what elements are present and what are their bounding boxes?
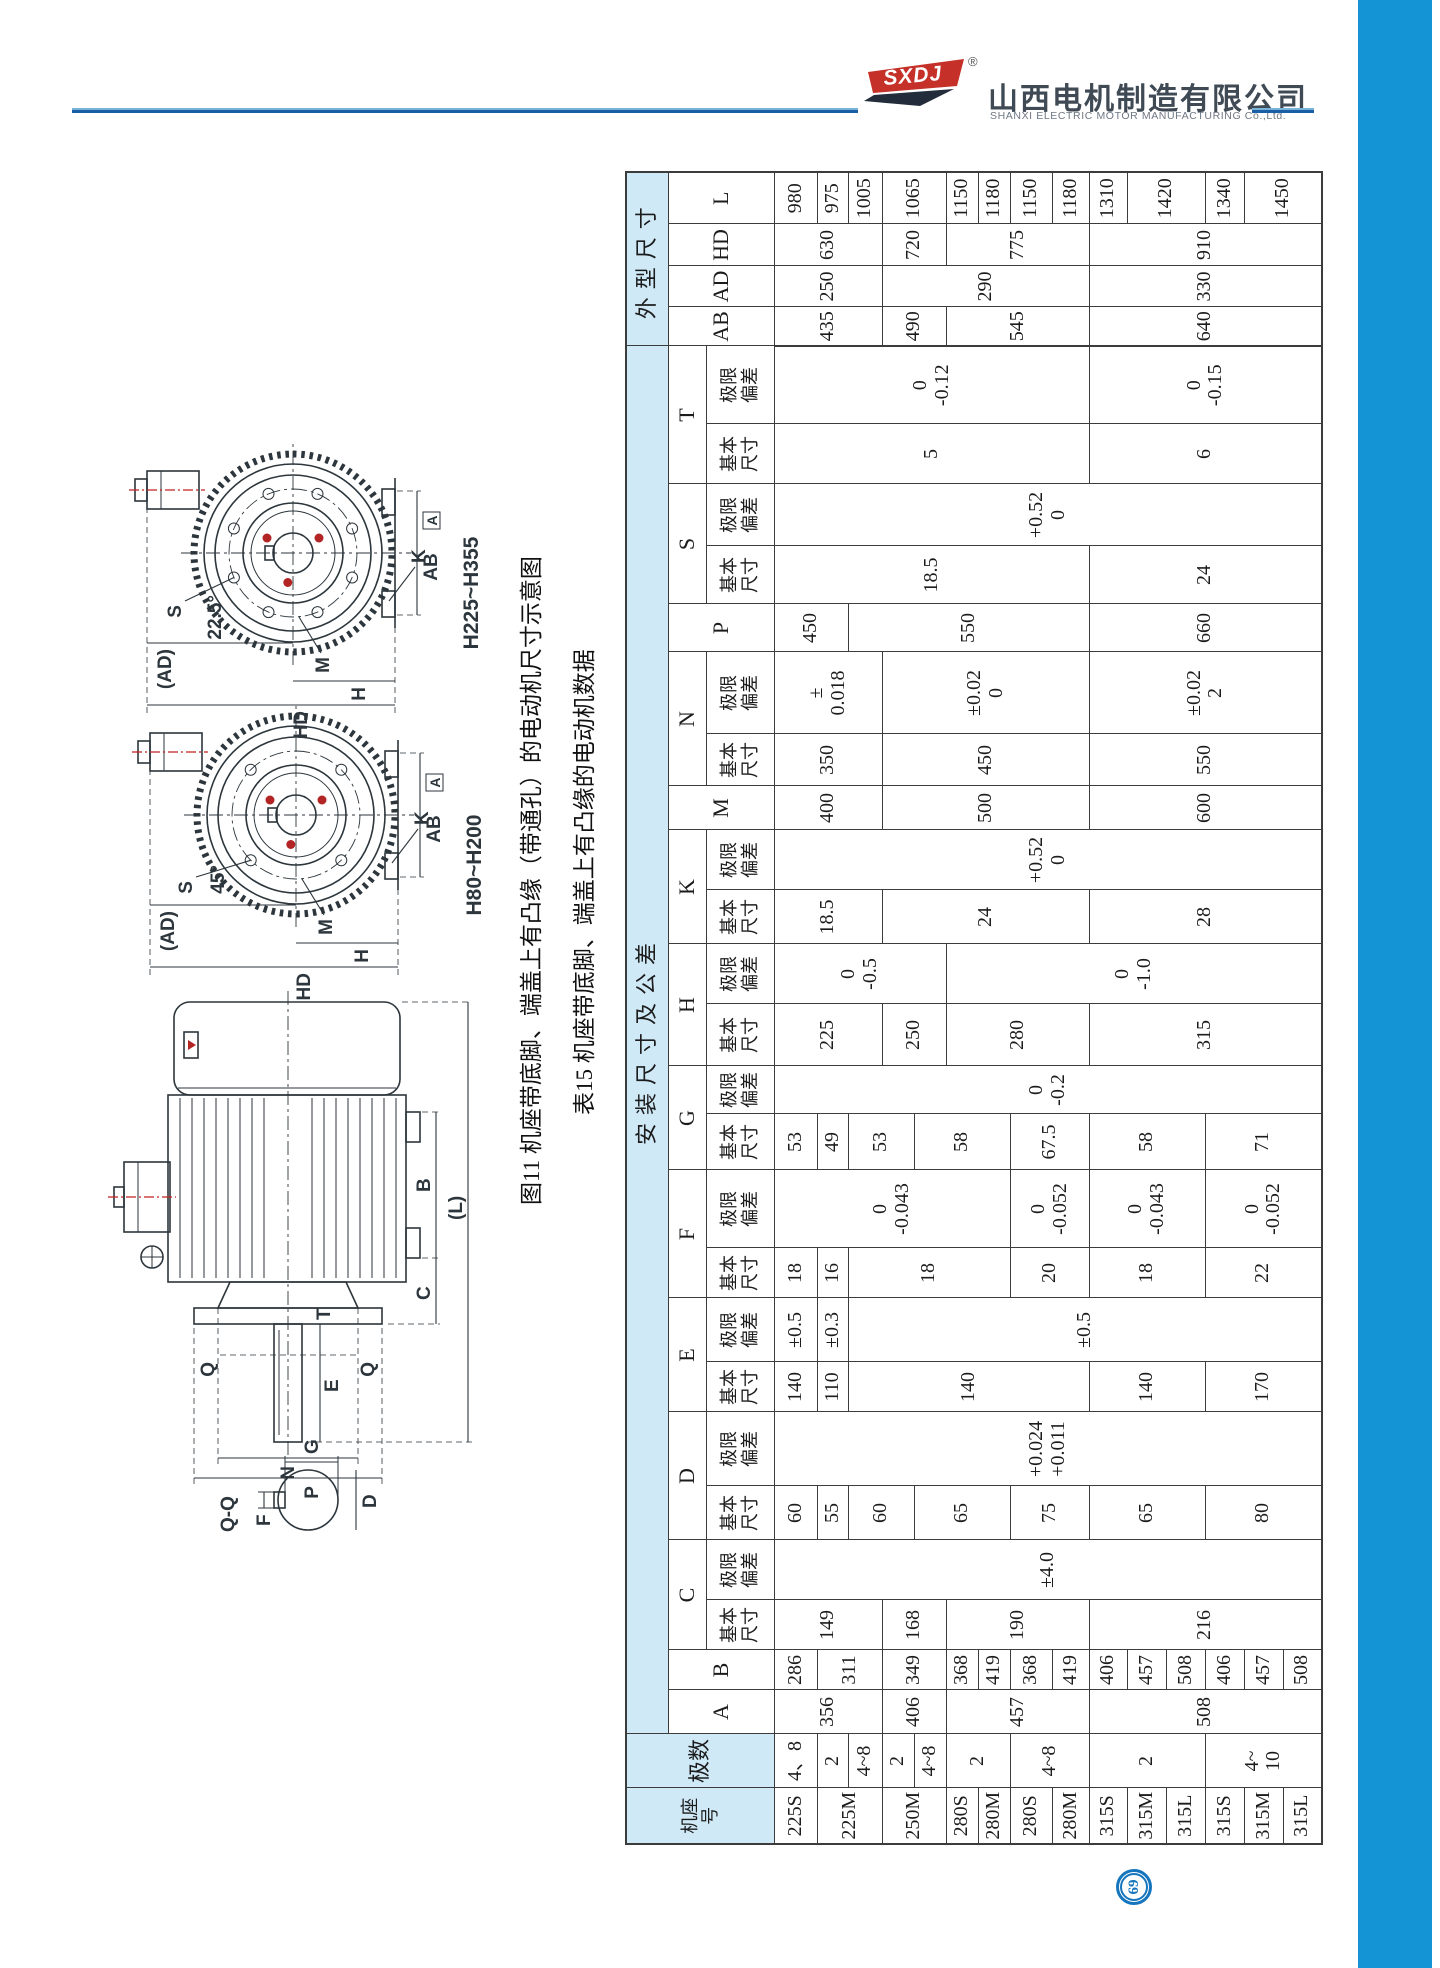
dim-label-s: S bbox=[176, 881, 197, 894]
dim-label-p: P bbox=[302, 1486, 323, 1499]
cell-L-row4: 1065 bbox=[882, 172, 946, 224]
page-number: 69 bbox=[1126, 1880, 1143, 1895]
cell-frame-row9: 280M bbox=[1052, 1788, 1089, 1844]
cell-frame-row1: 225S bbox=[774, 1788, 817, 1844]
cell-HD-row4: 720 bbox=[882, 224, 946, 266]
cell-Fb-row1: 18 bbox=[774, 1248, 817, 1298]
cell-Fb-row10: 18 bbox=[1089, 1248, 1205, 1298]
cell-poles-row4: 2 bbox=[882, 1734, 914, 1788]
cell-B-row2: 311 bbox=[817, 1650, 882, 1690]
cell-Ft-row1: 0 -0.043 bbox=[774, 1170, 1010, 1248]
cell-Eb-row13: 170 bbox=[1205, 1362, 1322, 1412]
page-number-badge: 69 bbox=[1116, 1869, 1152, 1905]
cell-L-row14: 1450 bbox=[1244, 172, 1322, 224]
group-header-mounting: 安装尺寸及公差 bbox=[626, 346, 668, 1734]
dim-label-s: S bbox=[165, 605, 186, 618]
cell-P-row10: 660 bbox=[1089, 604, 1322, 652]
cell-L-row2: 975 bbox=[817, 172, 848, 224]
cell-Gb-row8: 67.5 bbox=[1010, 1114, 1089, 1170]
motor-side-view: Q Q bbox=[108, 990, 472, 1499]
cell-B-row8: 368 bbox=[1010, 1650, 1052, 1690]
cell-P-row1: 450 bbox=[774, 604, 848, 652]
section-caption: Q-Q bbox=[218, 1496, 239, 1532]
group-header-outline: 外型尺寸 bbox=[626, 172, 668, 346]
registered-mark: ® bbox=[968, 54, 978, 69]
cell-Fb-row8: 20 bbox=[1010, 1248, 1089, 1298]
flange-hole-angle-small: 45° bbox=[208, 865, 229, 894]
cell-poles-row13: 4~ 10 bbox=[1205, 1734, 1322, 1788]
dim-label-m: M bbox=[313, 657, 334, 673]
cell-Gb-row10: 58 bbox=[1089, 1114, 1205, 1170]
table-title: 表15 机座带底脚、端盖上有凸缘的电动机数据 bbox=[565, 655, 599, 1115]
section-mark-q-bottom: Q bbox=[358, 1362, 379, 1377]
sxdj-logo-icon: SXDJ bbox=[862, 56, 984, 114]
cell-Kb-row1: 18.5 bbox=[774, 890, 882, 944]
cell-Kb-row10: 28 bbox=[1089, 890, 1322, 944]
sub-header-Sb: 基本 尺寸 bbox=[706, 546, 774, 604]
cell-poles-row2: 2 bbox=[817, 1734, 848, 1788]
cell-A-row4: 406 bbox=[882, 1690, 946, 1734]
cell-Tt-row10: 0 -0.15 bbox=[1089, 346, 1322, 424]
col-header-M: M bbox=[668, 786, 774, 830]
dim-label-e: E bbox=[322, 1379, 343, 1392]
col-header-L: L bbox=[668, 172, 774, 224]
cell-B-row15: 508 bbox=[1283, 1650, 1322, 1690]
cell-Nt-row10: ±0.02 2 bbox=[1089, 652, 1322, 734]
col-header-A: A bbox=[668, 1690, 774, 1734]
cell-AB-row6: 545 bbox=[946, 307, 1089, 346]
cell-Eb-row3: 140 bbox=[848, 1362, 1089, 1412]
cell-Db-row5: 65 bbox=[914, 1486, 1010, 1540]
cell-Kb-row4: 24 bbox=[882, 890, 1089, 944]
col-header-B: B bbox=[668, 1650, 774, 1690]
col-header-T: T bbox=[668, 346, 706, 484]
sub-header-Eb: 基本 尺寸 bbox=[706, 1362, 774, 1412]
dim-label-ad: (AD) bbox=[155, 649, 176, 689]
col-header-AD: AD bbox=[668, 266, 774, 307]
cell-L-row13: 1340 bbox=[1205, 172, 1244, 224]
dim-label-m: M bbox=[316, 919, 337, 935]
cell-Ct-row1: ±4.0 bbox=[774, 1540, 1322, 1600]
cell-frame-row7: 280M bbox=[978, 1788, 1010, 1844]
cell-AB-row4: 490 bbox=[882, 307, 946, 346]
cell-Nb-row10: 550 bbox=[1089, 734, 1322, 786]
col-header-H: H bbox=[668, 944, 706, 1066]
col-header-HD: HD bbox=[668, 224, 774, 266]
cell-Eb-row2: 110 bbox=[817, 1362, 848, 1412]
cell-Et-row3: ±0.5 bbox=[848, 1298, 1322, 1362]
cell-B-row6: 368 bbox=[946, 1650, 978, 1690]
cell-Hb-row1: 225 bbox=[774, 1004, 882, 1066]
col-header-K: K bbox=[668, 830, 706, 944]
cell-M-row10: 600 bbox=[1089, 786, 1322, 830]
col-header-frame: 机座 号 bbox=[626, 1788, 774, 1844]
cell-L-row8: 1150 bbox=[1010, 172, 1052, 224]
cell-Hb-row6: 280 bbox=[946, 1004, 1089, 1066]
dim-label-hd: HD bbox=[294, 973, 315, 1000]
section-mark-q-top: Q bbox=[198, 1362, 219, 1377]
cell-Sb-row1: 18.5 bbox=[774, 546, 1089, 604]
cell-poles-row10: 2 bbox=[1089, 1734, 1205, 1788]
cell-Db-row13: 80 bbox=[1205, 1486, 1322, 1540]
col-header-poles: 极数 bbox=[626, 1734, 774, 1788]
dim-label-f: F bbox=[254, 1514, 275, 1526]
cell-L-row10: 1310 bbox=[1089, 172, 1127, 224]
sub-header-Et: 极限 偏差 bbox=[706, 1298, 774, 1362]
cell-B-row9: 419 bbox=[1052, 1650, 1089, 1690]
cell-Gb-row13: 71 bbox=[1205, 1114, 1322, 1170]
dim-label-ab: AB bbox=[424, 815, 445, 842]
cell-Cb-row10: 216 bbox=[1089, 1600, 1322, 1650]
sub-header-Dt: 极限 偏差 bbox=[706, 1412, 774, 1486]
cell-Fb-row2: 16 bbox=[817, 1248, 848, 1298]
cell-Eb-row10: 140 bbox=[1089, 1362, 1205, 1412]
col-header-E: E bbox=[668, 1298, 706, 1412]
cell-L-row6: 1150 bbox=[946, 172, 978, 224]
sub-header-Cb: 基本 尺寸 bbox=[706, 1600, 774, 1650]
col-header-D: D bbox=[668, 1412, 706, 1540]
sub-header-Nt: 极限 偏差 bbox=[706, 652, 774, 734]
cell-Gb-row5: 58 bbox=[914, 1114, 1010, 1170]
cell-frame-row15: 315L bbox=[1283, 1788, 1322, 1844]
sub-header-St: 极限 偏差 bbox=[706, 484, 774, 546]
figure-caption: 图11 机座带底脚、端盖上有凸缘（带通孔）的电动机尺寸示意图 bbox=[512, 585, 546, 1205]
sub-header-Ht: 极限 偏差 bbox=[706, 944, 774, 1004]
dim-label-ad: (AD) bbox=[158, 911, 179, 951]
sub-header-Gt: 极限 偏差 bbox=[706, 1066, 774, 1114]
col-header-S: S bbox=[668, 484, 706, 604]
cell-Cb-row4: 168 bbox=[882, 1600, 946, 1650]
cell-Db-row8: 75 bbox=[1010, 1486, 1089, 1540]
cell-frame-row13: 315S bbox=[1205, 1788, 1244, 1844]
motor-dimension-table: 机座 号极数安装尺寸及公差外型尺寸ABCDEFGHKMNPSTABADHDL基本… bbox=[625, 171, 1323, 1845]
flange-hole-angle-large: 22.5° bbox=[205, 595, 226, 640]
frame-range-small: H80~H200 bbox=[463, 815, 486, 916]
cell-frame-row6: 280S bbox=[946, 1788, 978, 1844]
cell-L-row7: 1180 bbox=[978, 172, 1010, 224]
cell-AD-row10: 330 bbox=[1089, 266, 1322, 307]
cell-Nt-row4: ±0.02 0 bbox=[882, 652, 1089, 734]
col-header-P: P bbox=[668, 604, 774, 652]
cell-L-row1: 980 bbox=[774, 172, 817, 224]
dim-label-h: H bbox=[352, 949, 373, 963]
cell-Dt-row1: +0.024 +0.011 bbox=[774, 1412, 1322, 1486]
cell-poles-row3: 4~8 bbox=[848, 1734, 882, 1788]
frame-range-large: H225~H355 bbox=[460, 536, 483, 649]
cell-Gb-row3: 53 bbox=[848, 1114, 914, 1170]
cell-frame-row4: 250M bbox=[882, 1788, 946, 1844]
cell-poles-row1: 4、8 bbox=[774, 1734, 817, 1788]
cell-Ht-row1: 0 -0.5 bbox=[774, 944, 946, 1004]
col-header-AB: AB bbox=[668, 307, 774, 346]
col-header-C: C bbox=[668, 1540, 706, 1650]
motor-dimension-figure: Q-Q F G D Q Q bbox=[68, 350, 516, 1550]
cell-B-row10: 406 bbox=[1089, 1650, 1127, 1690]
cell-Ht-row6: 0 -1.0 bbox=[946, 944, 1322, 1004]
sub-header-Nb: 基本 尺寸 bbox=[706, 734, 774, 786]
cell-Et-row1: ±0.5 bbox=[774, 1298, 817, 1362]
col-header-N: N bbox=[668, 652, 706, 786]
dim-label-t: T bbox=[314, 1308, 335, 1320]
cell-Gt-row1: 0 -0.2 bbox=[774, 1066, 1322, 1114]
cell-HD-row1: 630 bbox=[774, 224, 882, 266]
cell-poles-row6: 2 bbox=[946, 1734, 1010, 1788]
cell-Nb-row1: 350 bbox=[774, 734, 882, 786]
cell-B-row7: 419 bbox=[978, 1650, 1010, 1690]
dim-label-overall-length: (L) bbox=[446, 1196, 467, 1220]
cell-St-row1: +0.52 0 bbox=[774, 484, 1322, 546]
cell-Db-row2: 55 bbox=[817, 1486, 848, 1540]
cell-B-row14: 457 bbox=[1244, 1650, 1283, 1690]
cell-Hb-row4: 250 bbox=[882, 1004, 946, 1066]
cell-B-row4: 349 bbox=[882, 1650, 946, 1690]
dim-label-b: B bbox=[414, 1178, 435, 1192]
cell-M-row4: 500 bbox=[882, 786, 1089, 830]
cell-Et-row2: ±0.3 bbox=[817, 1298, 848, 1362]
sub-header-Kt: 极限 偏差 bbox=[706, 830, 774, 890]
dim-label-hd: HD bbox=[291, 711, 312, 738]
cell-poles-row5: 4~8 bbox=[914, 1734, 946, 1788]
cell-Db-row1: 60 bbox=[774, 1486, 817, 1540]
cell-B-row12: 508 bbox=[1166, 1650, 1205, 1690]
cell-Cb-row1: 149 bbox=[774, 1600, 882, 1650]
cell-P-row3: 550 bbox=[848, 604, 1089, 652]
cell-frame-row12: 315L bbox=[1166, 1788, 1205, 1844]
sub-header-Db: 基本 尺寸 bbox=[706, 1486, 774, 1540]
cell-Ft-row10: 0 -0.043 bbox=[1089, 1170, 1205, 1248]
cell-Tb-row10: 6 bbox=[1089, 424, 1322, 484]
cell-Gb-row2: 49 bbox=[817, 1114, 848, 1170]
dim-label-ab: AB bbox=[421, 553, 442, 580]
col-header-F: F bbox=[668, 1170, 706, 1298]
cell-HD-row6: 775 bbox=[946, 224, 1089, 266]
cell-Eb-row1: 140 bbox=[774, 1362, 817, 1412]
cell-B-row13: 406 bbox=[1205, 1650, 1244, 1690]
cell-Nt-row1: ± 0.018 bbox=[774, 652, 882, 734]
datum-flag-a: A bbox=[424, 515, 440, 525]
cell-Hb-row10: 315 bbox=[1089, 1004, 1322, 1066]
dim-label-d: D bbox=[360, 1494, 381, 1508]
cell-Ft-row8: 0 -0.052 bbox=[1010, 1170, 1089, 1248]
cell-Tt-row1: 0 -0.12 bbox=[774, 346, 1089, 424]
cell-frame-row2: 225M bbox=[817, 1788, 882, 1844]
page-edge-blue-bar bbox=[1358, 0, 1432, 1968]
cell-Kt-row1: +0.52 0 bbox=[774, 830, 1322, 890]
sub-header-Fb: 基本 尺寸 bbox=[706, 1248, 774, 1298]
cell-L-row9: 1180 bbox=[1052, 172, 1089, 224]
cell-B-row11: 457 bbox=[1127, 1650, 1166, 1690]
cell-A-row10: 508 bbox=[1089, 1690, 1322, 1734]
cell-Cb-row6: 190 bbox=[946, 1600, 1089, 1650]
sub-header-Hb: 基本 尺寸 bbox=[706, 1004, 774, 1066]
cell-Nb-row4: 450 bbox=[882, 734, 1089, 786]
cell-HD-row10: 910 bbox=[1089, 224, 1322, 266]
dim-label-c: C bbox=[414, 1286, 435, 1300]
datum-flag-a: A bbox=[427, 777, 443, 787]
sub-header-Gb: 基本 尺寸 bbox=[706, 1114, 774, 1170]
cell-frame-row10: 315S bbox=[1089, 1788, 1127, 1844]
cell-Tb-row1: 5 bbox=[774, 424, 1089, 484]
cell-AD-row4: 290 bbox=[882, 266, 1089, 307]
cell-Fb-row3: 18 bbox=[848, 1248, 1010, 1298]
end-view-large-frames: H HD K AB A (AD) S 22.5° M H225~H355 bbox=[129, 441, 483, 738]
cell-L-row3: 1005 bbox=[848, 172, 882, 224]
cell-Ft-row13: 0 -0.052 bbox=[1205, 1170, 1322, 1248]
sub-header-Tt: 极限 偏差 bbox=[706, 346, 774, 424]
cell-Gb-row1: 53 bbox=[774, 1114, 817, 1170]
cell-B-row1: 286 bbox=[774, 1650, 817, 1690]
cell-AB-row1: 435 bbox=[774, 307, 882, 346]
shaft-section-detail: Q-Q F G D bbox=[218, 1439, 381, 1532]
sub-header-Ct: 极限 偏差 bbox=[706, 1540, 774, 1600]
end-view-small-frames: H HD K AB A (AD) S 45° M H80~H200 bbox=[132, 703, 486, 1000]
cell-L-row11: 1420 bbox=[1127, 172, 1205, 224]
cell-poles-row8: 4~8 bbox=[1010, 1734, 1089, 1788]
cell-A-row1: 356 bbox=[774, 1690, 882, 1734]
sub-header-Ft: 极限 偏差 bbox=[706, 1170, 774, 1248]
cell-frame-row8: 280S bbox=[1010, 1788, 1052, 1844]
cell-Fb-row13: 22 bbox=[1205, 1248, 1322, 1298]
col-header-G: G bbox=[668, 1066, 706, 1170]
cell-M-row1: 400 bbox=[774, 786, 882, 830]
cell-AD-row1: 250 bbox=[774, 266, 882, 307]
cell-frame-row14: 315M bbox=[1244, 1788, 1283, 1844]
cell-Db-row3: 60 bbox=[848, 1486, 914, 1540]
cell-Db-row10: 65 bbox=[1089, 1486, 1205, 1540]
cell-AB-row10: 640 bbox=[1089, 307, 1322, 346]
cell-A-row6: 457 bbox=[946, 1690, 1089, 1734]
sub-header-Kb: 基本 尺寸 bbox=[706, 890, 774, 944]
dim-label-h: H bbox=[349, 687, 370, 701]
cell-frame-row11: 315M bbox=[1127, 1788, 1166, 1844]
cell-Sb-row10: 24 bbox=[1089, 546, 1322, 604]
rotated-content-sheet: Q-Q F G D Q Q bbox=[60, 108, 1330, 1905]
sub-header-Tb: 基本 尺寸 bbox=[706, 424, 774, 484]
